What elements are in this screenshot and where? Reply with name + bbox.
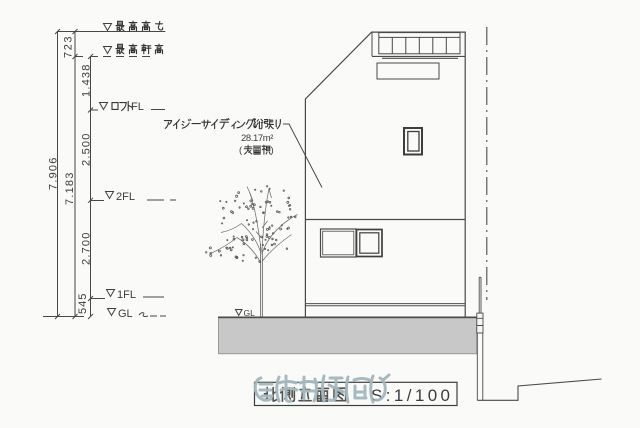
svg-text:7.906: 7.906	[48, 156, 60, 190]
svg-text:2.500: 2.500	[81, 132, 93, 166]
svg-text:1FL: 1FL	[117, 289, 136, 301]
svg-text:GL: GL	[118, 308, 133, 320]
svg-text:723: 723	[63, 35, 75, 58]
svg-text:2FL: 2FL	[116, 191, 135, 203]
svg-text:): )	[271, 145, 274, 156]
svg-text:545: 545	[77, 293, 89, 314]
svg-text:2.700: 2.700	[81, 231, 93, 265]
svg-text:28.17m²: 28.17m²	[241, 133, 273, 144]
svg-text:7.183: 7.183	[64, 171, 76, 205]
svg-text:FL: FL	[131, 101, 144, 113]
svg-text:1.438: 1.438	[81, 63, 93, 97]
